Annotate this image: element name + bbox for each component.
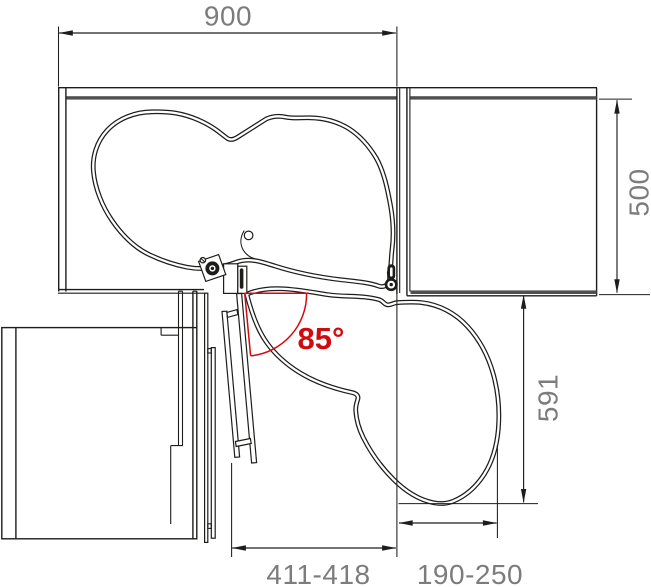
lower-cabinet-interior-divider [161, 291, 183, 524]
door-side-panel-b [211, 348, 215, 539]
right-cabinet-front-rail [411, 290, 597, 294]
lower-cabinet-box [2, 328, 197, 539]
dimension-top-width: 900 [59, 1, 396, 36]
lower-cabinet [2, 291, 197, 539]
door-leaf-rear [222, 311, 240, 457]
arrow-right-icon [483, 520, 497, 525]
upper-tray [93, 112, 393, 287]
dim-label-411-418: 411-418 [266, 559, 370, 587]
lower-tray [247, 289, 499, 504]
arrow-right-icon [382, 30, 396, 35]
hinge-pin-center [390, 283, 393, 286]
arrow-left-icon [399, 520, 413, 525]
dim-label-900: 900 [204, 1, 252, 32]
corner-cabinet-top-rail [67, 96, 397, 99]
dim-label-190-250: 190-250 [417, 559, 523, 587]
arrow-right-icon [382, 545, 396, 550]
dim-label-591: 591 [533, 374, 564, 422]
dimension-pullout-extent: 591 [521, 295, 564, 503]
arrow-up-icon [521, 295, 526, 309]
door-panel-connector-bottom [208, 524, 212, 529]
arrow-down-icon [521, 489, 526, 503]
technical-drawing-canvas: 85° 900 500 591 411-418 190-250 [0, 0, 651, 587]
right-cabinet-top-rail [411, 96, 597, 99]
dimension-right-depth: 500 [614, 100, 651, 294]
door-side-panel-a [205, 293, 208, 542]
angle-label: 85° [298, 321, 345, 356]
arrow-up-icon [614, 100, 619, 114]
right-cabinet [407, 88, 597, 296]
door-hinge-arm-top [227, 310, 238, 318]
pivot-hub-center [211, 267, 214, 270]
door-panel-connector-top [208, 349, 212, 353]
pivot-post [224, 264, 238, 294]
dimension-bottom-left: 411-418 [232, 545, 396, 587]
corner-cabinet-pullout-drawing: 85° 900 500 591 411-418 190-250 [0, 0, 651, 587]
corner-hinge [386, 264, 396, 290]
hinge-slide-slit [390, 267, 393, 276]
arrow-left-icon [232, 545, 246, 550]
arrow-down-icon [614, 279, 619, 293]
dim-label-500: 500 [624, 168, 651, 216]
pivot-roller-icon [244, 231, 253, 240]
door-hinge-slot-icon [240, 268, 244, 288]
dimension-bottom-right: 190-250 [399, 520, 523, 587]
arrow-left-icon [59, 30, 73, 35]
